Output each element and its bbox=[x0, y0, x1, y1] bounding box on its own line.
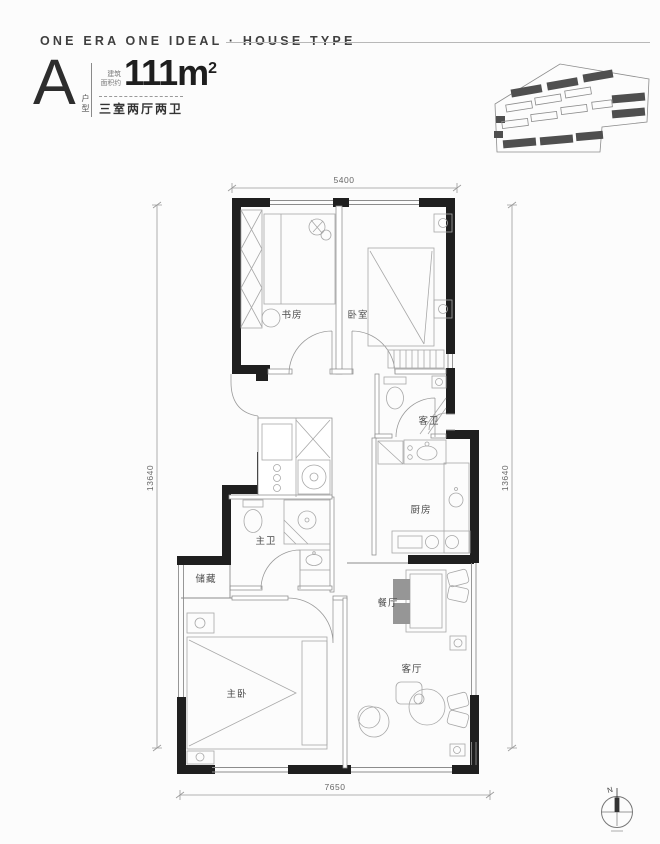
dim-top-value: 5400 bbox=[334, 175, 355, 185]
dimension-top: 5400 bbox=[228, 175, 461, 193]
site-buildings-highlighted bbox=[494, 69, 645, 148]
site-key-map bbox=[494, 64, 649, 152]
dim-left-value: 13640 bbox=[145, 465, 155, 491]
living-furniture bbox=[358, 636, 469, 756]
floorplan-page: ONE ERA ONE IDEAL · HOUSE TYPE A 户型 建筑 面… bbox=[0, 0, 660, 844]
room-label-bedroom: 卧室 bbox=[347, 309, 368, 321]
compass: N bbox=[602, 785, 633, 831]
room-label-dining: 餐厅 bbox=[377, 597, 398, 609]
room-label-guest-bath: 客卫 bbox=[418, 415, 439, 427]
room-label-kitchen: 厨房 bbox=[410, 504, 431, 516]
compass-needle bbox=[615, 798, 620, 813]
dimension-left: 13640 bbox=[145, 202, 162, 751]
master-bedroom-furniture bbox=[187, 613, 327, 764]
room-label-storage: 储藏 bbox=[195, 573, 216, 585]
kitchen-fixtures bbox=[378, 440, 470, 553]
room-label-master-bedroom: 主卧 bbox=[226, 688, 247, 700]
compass-north-label: N bbox=[606, 785, 614, 795]
master-bath-fixtures bbox=[243, 500, 330, 570]
dining-furniture bbox=[393, 569, 469, 632]
dimension-right: 13640 bbox=[500, 202, 517, 751]
dim-bottom-value: 7650 bbox=[325, 782, 346, 792]
room-label-living: 客厅 bbox=[401, 663, 422, 675]
room-label-study: 书房 bbox=[281, 309, 302, 321]
floorplan-canvas: 书房 卧室 客卫 厨房 主卫 储藏 餐厅 主卧 客厅 5400 13640 13… bbox=[0, 0, 660, 844]
room-label-master-bath: 主卫 bbox=[255, 535, 276, 547]
dimension-bottom: 7650 bbox=[176, 782, 494, 800]
bedroom-furniture bbox=[368, 214, 452, 368]
partitions bbox=[181, 206, 446, 768]
dim-right-value: 13640 bbox=[500, 465, 510, 491]
